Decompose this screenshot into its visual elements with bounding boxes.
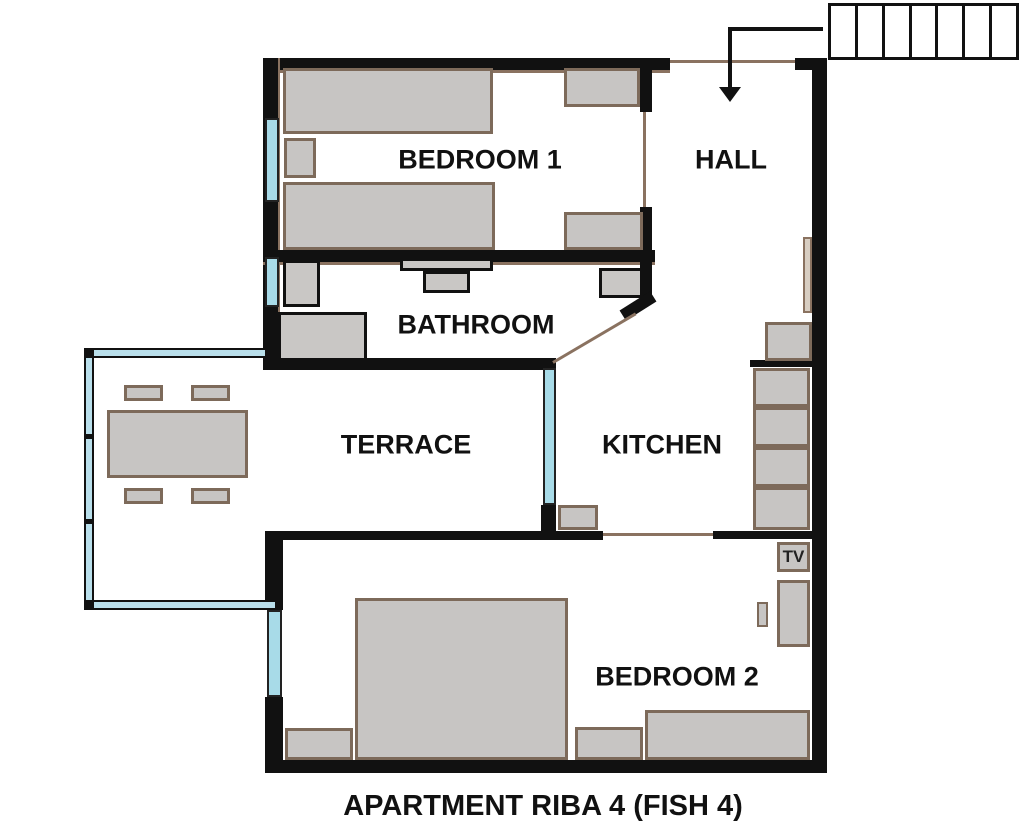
entry-opening-line [670, 60, 795, 63]
window-bathroom [265, 257, 279, 307]
staircase [828, 3, 1019, 60]
terrace-railing-bottom [84, 600, 277, 610]
chair [757, 602, 768, 627]
room-label-bathroom: BATHROOM [398, 310, 555, 341]
door-panel [803, 237, 812, 313]
vanity-shelf [403, 259, 490, 268]
stair-step [938, 6, 965, 57]
chair [191, 385, 230, 401]
closet [765, 322, 812, 361]
bed [355, 598, 568, 760]
room-label-bedroom-2: BEDROOM 2 [595, 662, 759, 693]
bedroom2-door-line [603, 533, 713, 536]
stair-step [831, 6, 858, 57]
window-bedroom1 [265, 118, 279, 202]
dresser [564, 68, 640, 107]
nightstand [575, 727, 643, 760]
wall [713, 531, 827, 539]
wall [265, 697, 283, 773]
entry-arrow-shaft-v [728, 27, 732, 88]
entry-arrow-shaft-h [730, 27, 823, 31]
chair [124, 488, 163, 504]
terrace-railing-top [84, 348, 267, 358]
window-kitchen [543, 368, 556, 505]
desk [777, 580, 810, 647]
room-label-kitchen: KITCHEN [602, 430, 722, 461]
terrace-railing-left [84, 348, 94, 610]
dining-table [107, 410, 248, 478]
chair [191, 488, 230, 504]
toilet [599, 268, 643, 298]
dresser [564, 212, 643, 250]
railing-corner [84, 600, 94, 610]
wall [265, 760, 827, 773]
room-label-hall: HALL [695, 145, 767, 176]
stair-step [912, 6, 939, 57]
vanity-counter [400, 257, 493, 271]
washing-machine [283, 260, 320, 307]
wall-window-cap [541, 505, 556, 533]
wall [750, 360, 817, 367]
stair-step [885, 6, 912, 57]
page-title: APARTMENT RIBA 4 (FISH 4) [343, 790, 743, 823]
room-label-bedroom-1: BEDROOM 1 [398, 145, 562, 176]
room-label-terrace: TERRACE [341, 430, 472, 461]
chair [124, 385, 163, 401]
kitchen-cabinet [753, 447, 810, 487]
nightstand [285, 728, 353, 760]
stair-step [858, 6, 885, 57]
kitchen-cabinet [753, 487, 810, 530]
sink [423, 271, 470, 293]
stair-step [965, 6, 992, 57]
bathroom-door-line [552, 312, 636, 363]
kitchen-cabinet [753, 368, 810, 407]
wall [640, 58, 652, 112]
railing-corner [84, 348, 94, 358]
bedroom1-door-line [643, 112, 646, 207]
window-bedroom2 [267, 610, 282, 697]
nightstand [284, 138, 316, 178]
entry-arrow-head [719, 87, 741, 102]
tv-label: TV [783, 547, 805, 567]
wall [265, 532, 283, 610]
railing-divider [84, 434, 94, 439]
tv: TV [777, 542, 810, 572]
shower [278, 312, 367, 361]
wall [812, 58, 827, 773]
stool [558, 505, 598, 530]
dresser [645, 710, 810, 760]
kitchen-cabinet [753, 407, 810, 447]
bed [283, 68, 493, 134]
stair-step [992, 6, 1016, 57]
railing-divider [84, 519, 94, 524]
bed [283, 182, 495, 250]
floor-plan: TV BEDROOM 1 HALL BATHROOM TERRACE KITCH… [0, 0, 1024, 836]
